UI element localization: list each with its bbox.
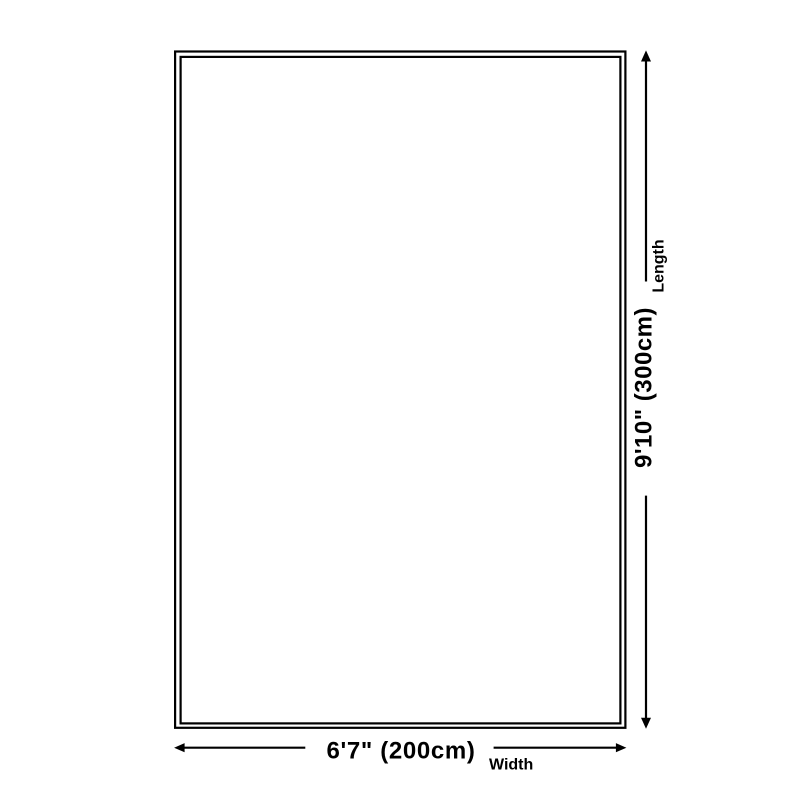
svg-text:6'7" (200cm): 6'7" (200cm) (327, 738, 476, 765)
svg-text:Length: Length (651, 239, 668, 292)
svg-text:9'10" (300cm): 9'10" (300cm) (631, 307, 658, 468)
svg-text:Width: Width (489, 756, 533, 773)
